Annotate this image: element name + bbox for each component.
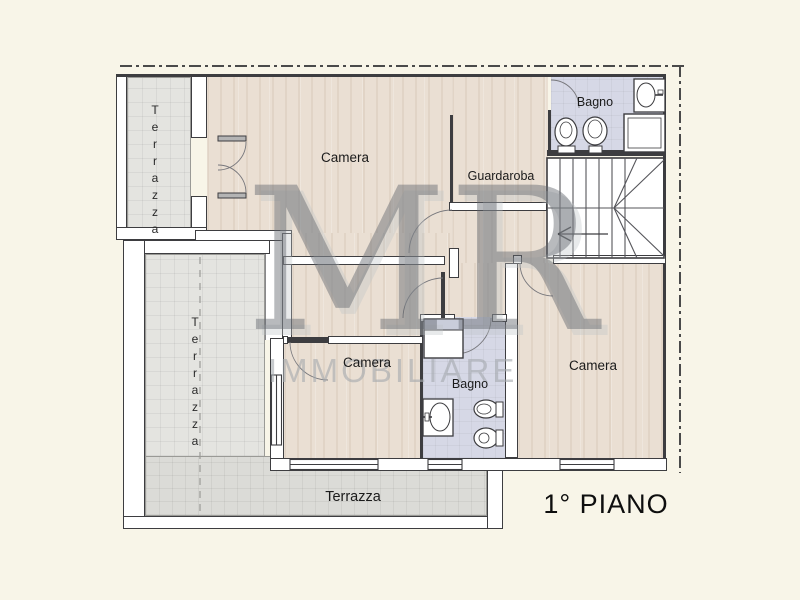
floor-plan: MR IMMOBILIARE Camera Guardaroba Bagno C… bbox=[0, 0, 800, 600]
room-label-terrace-top-left: Terrazza bbox=[148, 103, 162, 229]
room-label-camera-right: Camera bbox=[543, 358, 643, 373]
room-label-terrace-left: Terrazza bbox=[188, 315, 202, 441]
wall bbox=[123, 516, 503, 529]
room-label-bagno-top: Bagno bbox=[560, 95, 630, 109]
floor-title: 1° PIANO bbox=[536, 489, 676, 520]
wall bbox=[123, 240, 145, 528]
room-label-camera-mid: Camera bbox=[317, 355, 417, 370]
wall bbox=[191, 74, 207, 138]
wall bbox=[663, 74, 666, 464]
wall bbox=[270, 458, 667, 471]
room-label-bagno-bottom: Bagno bbox=[435, 377, 505, 391]
room-bagno-top-floor bbox=[551, 77, 663, 152]
watermark-initials: MR bbox=[245, 162, 565, 360]
boundary-line-top bbox=[120, 65, 684, 67]
boundary-line-right bbox=[679, 65, 681, 473]
wall bbox=[116, 74, 666, 77]
room-label-guardaroba: Guardaroba bbox=[455, 169, 547, 183]
room-label-camera-top: Camera bbox=[295, 150, 395, 165]
wall bbox=[116, 74, 127, 232]
room-label-terrace-bottom: Terrazza bbox=[298, 489, 408, 505]
